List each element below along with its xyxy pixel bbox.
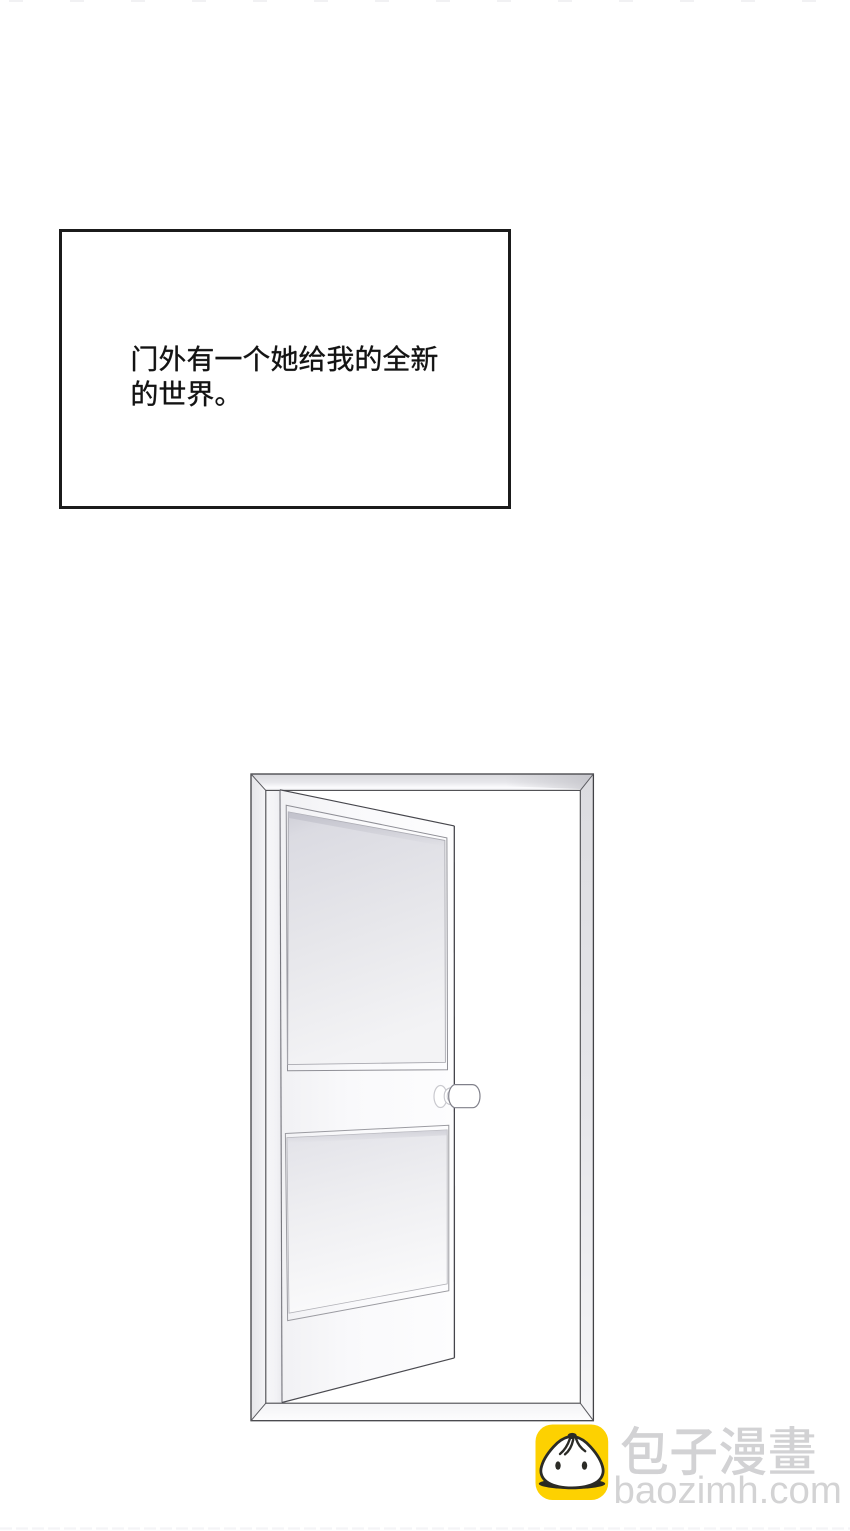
- svg-text:baozimh.com: baozimh.com: [614, 1469, 842, 1512]
